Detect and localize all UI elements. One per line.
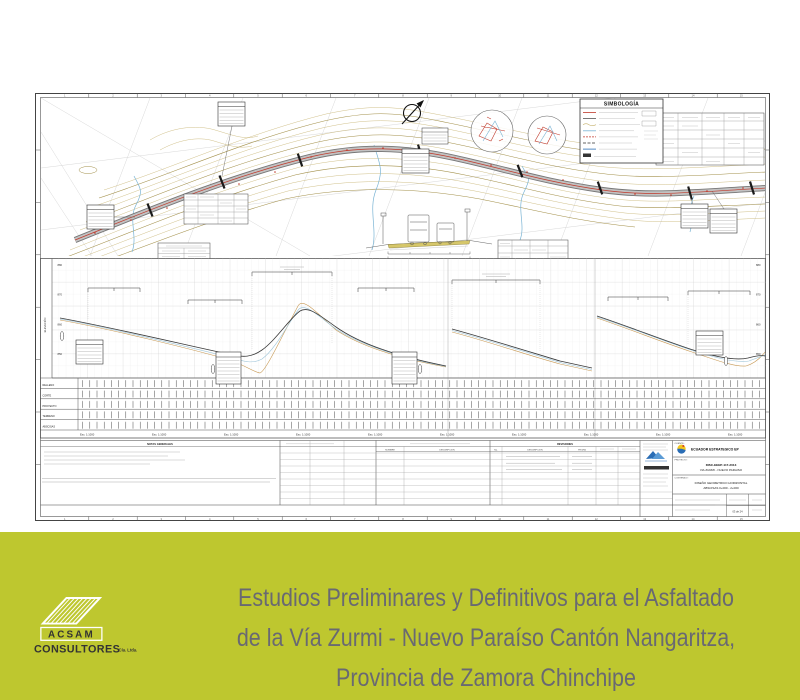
border-numbers-top: 123456789101112131415 [64,94,743,98]
title-line: Provincia de Zamora Chinchipe [223,658,749,698]
profile-panel: ELEVACIÓN 880 870 860 850 880 870 860 85… [41,259,766,439]
svg-text:NOTAS GENERALES: NOTAS GENERALES [147,442,173,446]
svg-text:REVISIONES: REVISIONES [557,442,573,446]
svg-text:FECHA: FECHA [578,448,586,451]
svg-text:TERRENO: TERRENO [43,415,55,418]
consultant-logo-cell [640,444,673,499]
svg-text:Esc: 1:1000: Esc: 1:1000 [296,432,311,436]
svg-text:850: 850 [58,352,63,356]
title-line: Estudios Preliminares y Definitivos para… [223,578,749,618]
svg-text:880: 880 [756,263,761,267]
svg-text:13: 13 [643,94,646,98]
svg-text:NOMBRE: NOMBRE [385,449,395,451]
footer-banner: ACSAM CONSULTORES Cía. Ltda. Estudios Pr… [0,532,800,700]
svg-text:4: 4 [209,94,211,98]
svg-text:VIA ZURMI - NUEVO PARAISO: VIA ZURMI - NUEVO PARAISO [700,468,743,472]
svg-text:15: 15 [740,94,743,98]
curve-detail-circles [471,110,566,154]
svg-text:DISC-EEEP-117-2013: DISC-EEEP-117-2013 [706,463,737,467]
svg-text:14: 14 [692,517,695,521]
svg-text:DESCRIPCION: DESCRIPCION [527,449,543,451]
svg-text:12: 12 [595,517,598,521]
svg-text:8: 8 [402,94,404,98]
svg-text:CONTENIDO :: CONTENIDO : [675,477,690,479]
svg-text:860: 860 [58,322,63,326]
svg-text:Esc: 1:1000: Esc: 1:1000 [224,432,239,436]
svg-text:10: 10 [498,94,501,98]
logo-suffix: Cía. Ltda. [119,648,138,653]
svg-text:13: 13 [643,517,646,521]
svg-text:7: 7 [354,94,356,98]
svg-text:ECUADOR ESTRATEGICO EP: ECUADOR ESTRATEGICO EP [691,448,740,452]
title-block: NOTAS GENERALES REVISIONES NOMBRE DESCRI… [41,441,766,517]
svg-text:DESCRIPCION: DESCRIPCION [439,449,455,451]
svg-text:PROYECTO: PROYECTO [43,405,57,408]
sheet-number: 03 de 24 [732,510,743,514]
legend-box: SIMBOLOGÍA [580,99,663,163]
svg-text:1: 1 [64,94,66,98]
svg-text:870: 870 [58,293,63,297]
svg-text:860: 860 [756,322,761,326]
svg-text:12: 12 [595,94,598,98]
data-rows: RELLENO CORTE PROYECTO TERRENO ABSCISAS [41,378,766,430]
svg-text:Esc: 1:1000: Esc: 1:1000 [440,432,455,436]
svg-text:6: 6 [306,94,308,98]
svg-text:CLIENTE :: CLIENTE : [675,443,686,445]
project-title: Estudios Preliminares y Definitivos para… [223,578,749,698]
title-line: de la Vía Zurmi - Nuevo Paraíso Cantón N… [223,618,749,658]
svg-text:14: 14 [692,94,695,98]
svg-text:Esc: 1:1000: Esc: 1:1000 [368,432,383,436]
logo-word: CONSULTORES [34,644,120,656]
svg-text:15: 15 [740,517,743,521]
svg-text:Esc: 1:1000: Esc: 1:1000 [152,432,167,436]
acsam-logo: ACSAM CONSULTORES Cía. Ltda. [33,596,155,658]
svg-text:9: 9 [451,94,453,98]
svg-text:PROYECTO :: PROYECTO : [675,459,689,461]
svg-text:ABSCISAS 0+000 - 2+000: ABSCISAS 0+000 - 2+000 [703,486,739,490]
svg-text:Esc: 1:1000: Esc: 1:1000 [584,432,599,436]
svg-text:Esc: 1:1000: Esc: 1:1000 [656,432,671,436]
revision-tables: REVISIONES NOMBRE DESCRIPCION No. DESCRI… [280,441,640,506]
svg-text:5: 5 [257,94,259,98]
client-cell: CLIENTE : ECUADOR ESTRATEGICO EP PROYECT… [673,443,766,517]
page: 123456789101112131415 123456789101112131… [0,0,800,700]
client-logo-icon [677,445,685,454]
svg-text:870: 870 [756,293,761,297]
svg-text:DISEÑO GEOMETRICO HORIZONTAL: DISEÑO GEOMETRICO HORIZONTAL [695,480,748,485]
svg-text:ABSCISAS: ABSCISAS [43,426,56,429]
svg-text:3: 3 [161,94,163,98]
svg-text:11: 11 [547,517,550,521]
svg-text:Esc: 1:1000: Esc: 1:1000 [728,432,743,436]
plan-profile-sheet-svg: 123456789101112131415 123456789101112131… [0,0,800,532]
notes-box: NOTAS GENERALES [41,442,281,482]
svg-text:RELLENO: RELLENO [43,384,55,387]
svg-text:2: 2 [112,94,114,98]
svg-text:11: 11 [547,94,550,98]
svg-text:Esc: 1:1000: Esc: 1:1000 [80,432,95,436]
legend-title: SIMBOLOGÍA [604,100,639,108]
svg-text:10: 10 [498,517,501,521]
logo-acronym: ACSAM [48,630,95,641]
svg-text:880: 880 [58,263,63,267]
svg-text:Esc: 1:1000: Esc: 1:1000 [512,432,527,436]
svg-text:CORTE: CORTE [43,394,52,397]
svg-text:No.: No. [494,449,498,451]
